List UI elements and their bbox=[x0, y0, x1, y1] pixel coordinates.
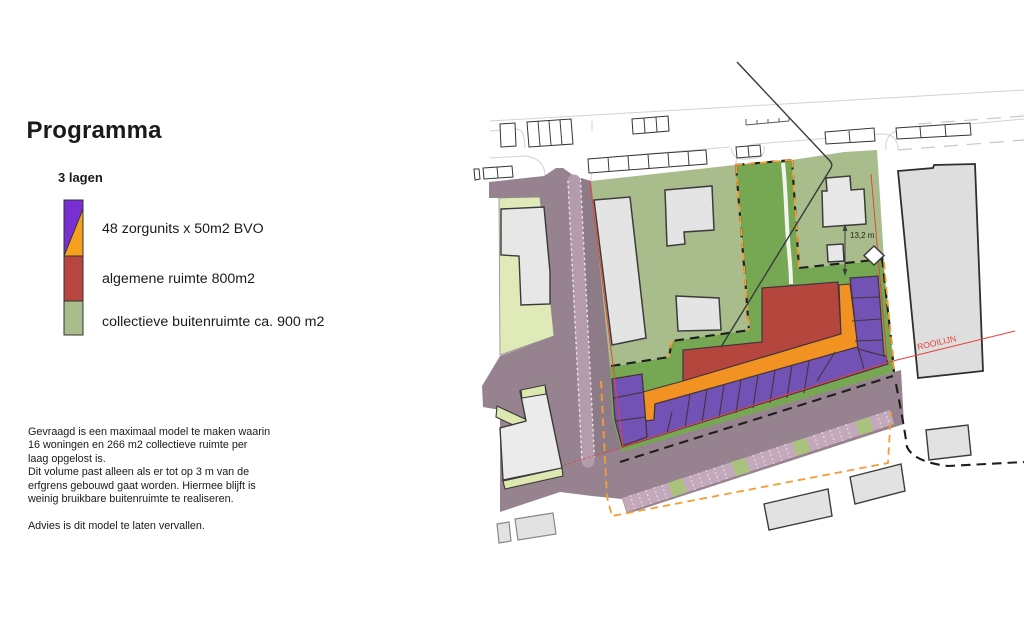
svg-text:13,2 m: 13,2 m bbox=[850, 231, 875, 240]
